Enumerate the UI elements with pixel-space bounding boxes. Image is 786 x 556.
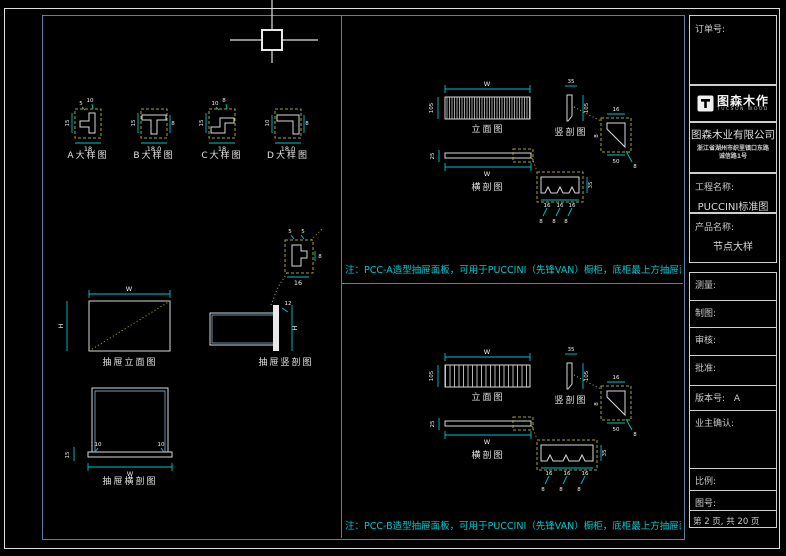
vsection-view: 35 105 竖剖图 [554, 347, 590, 406]
review-row: 审核: [690, 328, 776, 356]
section-pcc-b-canvas: W 105 立面图 W 25 横剖图 35 105 竖剖图 [341, 283, 683, 536]
drawing-no-row: 图号: [690, 491, 776, 511]
dim-text: W [484, 438, 491, 446]
profile-line [292, 245, 307, 266]
dim-text: 8 [305, 121, 309, 127]
dim-text: 35 [588, 181, 594, 188]
figure-label: 立面图 [471, 391, 504, 403]
dim-text: 8 [222, 98, 226, 104]
dim-text: 10 [87, 98, 94, 104]
dim-text: 25 [430, 420, 436, 427]
dim-text: 25 [430, 152, 436, 159]
detail-a: 5 10 15 18 A大样图 [65, 98, 109, 161]
dim-text: 15 [65, 451, 71, 458]
tucson-wood-logo-icon [697, 95, 714, 112]
note-pcc-b: 注：PCC-B造型抽屉面板，可用于PUCCINI（先锋VAN）橱柜，底柜最上方抽… [345, 518, 681, 532]
page-number: 第 2 页, 共 20 页 [690, 511, 776, 529]
dim-text: 12 [285, 301, 292, 307]
elevation-view: W 105 立面图 [429, 80, 530, 135]
dim-text: 10 [265, 119, 271, 126]
dim-text: 8 [594, 134, 600, 138]
detail-d: 10 8 18.0 D大样图 [265, 109, 309, 161]
logo-cell: 图森木作 TUCSON WOOD [689, 85, 777, 122]
address-line-1: 浙江省湖州市织里镇口东路 [690, 145, 776, 153]
version-row: 版本号: A [690, 386, 776, 411]
dim-text: 10 [158, 442, 165, 448]
leader-line [563, 476, 567, 484]
notch-detail: 35 16 16 16 8 8 8 [532, 158, 594, 225]
drawer-edge-callout: 5 5 8 16 [271, 229, 322, 305]
left-figures-canvas: 5 10 15 18 A大样图 15 8 18.0 B大样图 10 [42, 15, 341, 538]
owner-confirm-row: 业主确认: [690, 411, 776, 469]
dim-text: 5 [301, 229, 305, 235]
company-cell: 图森木业有限公司 浙江省湖州市织里镇口东路 诚信路1号 [689, 122, 777, 173]
figure-label: 竖剖图 [554, 126, 587, 138]
dim-text: 16 [544, 203, 551, 209]
dim-text: 15 [131, 119, 137, 126]
dim-text: 16 [582, 471, 589, 477]
dim-text: 15 [65, 119, 71, 126]
hsection-view: W 25 横剖图 [430, 417, 533, 461]
dim-text: 8 [559, 487, 563, 493]
dim-text: 8 [318, 254, 322, 260]
version-label: 版本号: [695, 394, 725, 404]
dim-text: W [484, 348, 491, 356]
front-panel [273, 305, 279, 351]
profile-line [541, 445, 593, 461]
dim-line [291, 235, 294, 239]
wedge-detail: 16 8 50 8 [574, 375, 637, 438]
drawer-body-inner [95, 391, 165, 452]
dim-text: H [291, 325, 299, 330]
leader-line [556, 208, 560, 216]
profile-line [541, 177, 579, 193]
dim-text: H [57, 323, 65, 328]
brand-name: 图森木作 [717, 95, 769, 107]
profile-line [607, 123, 625, 147]
front-panel [88, 452, 172, 457]
figure-label: B大样图 [133, 149, 174, 161]
profile-line [80, 113, 95, 133]
dim-text: 35 [568, 347, 575, 353]
dim-text: 5 [288, 229, 292, 235]
profile-line [142, 115, 166, 134]
drawer-elevation: W H 抽屉立面图 [57, 285, 170, 368]
note-pcc-a: 注：PCC-A造型抽屉面板，可用于PUCCINI（先锋VAN）橱柜，底柜最上方抽… [345, 262, 681, 276]
vsection-view: 35 105 竖剖图 [554, 79, 590, 138]
dim-text: 8 [633, 432, 637, 438]
product-cell: 产品名称: 节点大样 [689, 213, 777, 263]
leader-line [543, 208, 547, 216]
figure-label: 横剖图 [471, 181, 504, 193]
dim-text: 105 [429, 370, 435, 381]
wedge-detail: 16 8 50 8 [574, 107, 637, 170]
dim-text: 8 [541, 487, 545, 493]
dim-line [92, 104, 93, 109]
elevation-view: W 105 立面图 [429, 348, 530, 403]
profile-line [277, 115, 299, 134]
dim-text: 5 [79, 101, 83, 107]
company-address: 浙江省湖州市织里镇口东路 诚信路1号 [690, 145, 776, 161]
dim-text: 8 [564, 219, 568, 225]
drawer-vsection: 12 H 抽屉竖剖图 [210, 301, 314, 368]
dim-line [301, 235, 304, 239]
draft-row: 制图: [690, 301, 776, 328]
leader-line [626, 151, 632, 162]
hatched-panel [445, 365, 530, 387]
profile-line [211, 118, 234, 133]
hsection-view: W 25 横剖图 [430, 149, 533, 193]
dim-text: 50 [613, 159, 620, 165]
dim-text: 16 [613, 107, 620, 113]
panel-bar [445, 421, 531, 426]
brand-subtitle: TUCSON WOOD [717, 107, 769, 113]
dim-text: 8 [552, 219, 556, 225]
figure-label: 竖剖图 [554, 394, 587, 406]
dim-text: 15 [199, 119, 205, 126]
figure-label: 抽屉立面图 [102, 356, 157, 368]
scale-row: 比例: [690, 469, 776, 491]
company-name: 图森木业有限公司 [690, 127, 776, 142]
dim-text: 105 [584, 102, 590, 113]
diagonal-mark [89, 301, 170, 351]
dim-text: 8 [633, 164, 637, 170]
dim-text: 35 [602, 449, 608, 456]
leader-line [545, 476, 549, 484]
detail-box [75, 109, 101, 138]
product-label: 产品名称: [690, 214, 776, 233]
figure-label: 横剖图 [471, 449, 504, 461]
dim-text: 16 [557, 203, 564, 209]
dim-text: 8 [594, 402, 600, 406]
figure-label: 抽屉竖剖图 [258, 356, 313, 368]
dim-text: 16 [569, 203, 576, 209]
detail-zone [513, 149, 533, 162]
dim-text: W [484, 80, 491, 88]
dim-text: 8 [539, 219, 543, 225]
dim-line [226, 104, 227, 109]
dim-text: 105 [584, 370, 590, 381]
figure-label: 抽屉横剖图 [102, 475, 157, 487]
dim-text: W [126, 285, 133, 293]
leader-line [626, 419, 632, 430]
dim-text: 8 [577, 487, 581, 493]
dim-line [282, 308, 288, 312]
order-number-label: 订单号: [690, 16, 776, 35]
figure-label: 立面图 [471, 123, 504, 135]
product-value: 节点大样 [690, 238, 776, 253]
dim-text: 16 [294, 279, 302, 287]
leader-line [568, 208, 572, 216]
detail-c: 10 8 15 18 C大样图 [199, 98, 243, 161]
order-number-cell: 订单号: [689, 15, 777, 85]
drawer-hsection: 10 10 15 W 抽屉横剖图 [65, 388, 172, 487]
version-value: A [734, 394, 740, 404]
leader-line [581, 476, 585, 484]
dim-text: 8 [171, 121, 175, 127]
leader-line [311, 229, 322, 240]
logo-text: 图森木作 TUCSON WOOD [717, 95, 769, 113]
dim-text: 50 [613, 427, 620, 433]
notch-detail: 35 16 16 16 8 8 8 [532, 426, 608, 493]
section-pcc-a-canvas: W 105 立面图 W 25 横剖图 35 105 竖剖图 [341, 15, 683, 268]
dim-text: 10 [212, 101, 219, 107]
drawer-body [210, 313, 276, 345]
project-cell: 工程名称: PUCCINI标准图 [689, 173, 777, 213]
figure-label: A大样图 [67, 149, 108, 161]
figure-label: C大样图 [201, 149, 242, 161]
dim-text: 16 [546, 471, 553, 477]
dim-text: 16 [613, 375, 620, 381]
dim-text: 10 [95, 442, 102, 448]
profile-line [607, 391, 625, 415]
detail-b: 15 8 18.0 B大样图 [131, 109, 175, 161]
detail-zone [513, 417, 533, 430]
measure-row: 测量: [690, 273, 776, 301]
dim-line [161, 448, 164, 452]
drawer-body-inner [212, 315, 274, 343]
dim-text: 35 [568, 79, 575, 85]
hatched-panel [445, 97, 530, 119]
dim-text: 105 [429, 102, 435, 113]
dim-text: W [484, 170, 491, 178]
figure-label: D大样图 [267, 149, 309, 161]
address-line-2: 诚信路1号 [690, 153, 776, 161]
panel-bar [445, 153, 531, 158]
signoff-cell: 测量: 制图: 审核: 批准: 版本号: A 业主确认: 比例: 图号: 第 2… [689, 272, 777, 528]
profile-line [567, 95, 572, 121]
approve-row: 批准: [690, 356, 776, 386]
project-label: 工程名称: [690, 174, 776, 193]
dim-text: 16 [564, 471, 571, 477]
cad-sheet[interactable]: 5 10 15 18 A大样图 15 8 18.0 B大样图 10 [0, 0, 786, 556]
project-value: PUCCINI标准图 [690, 198, 776, 213]
profile-line [567, 363, 572, 389]
